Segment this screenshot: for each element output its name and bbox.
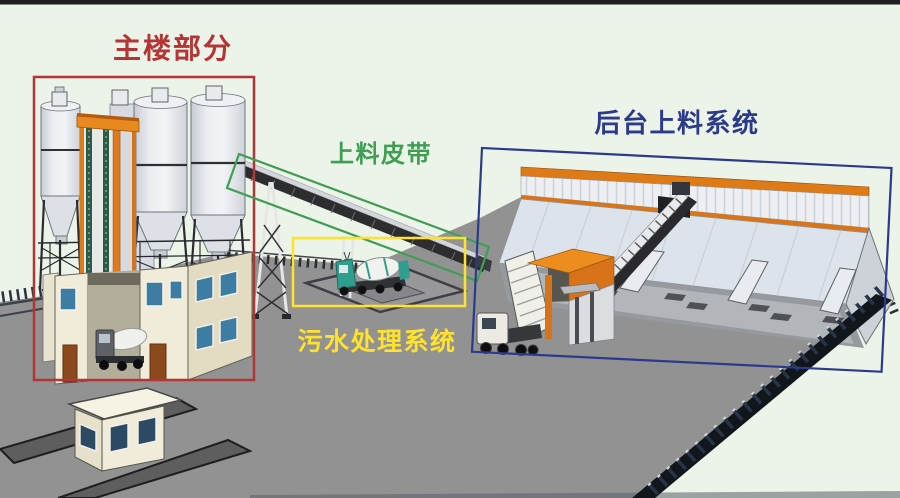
label-sewage: 污水处理系统 xyxy=(297,327,456,356)
door xyxy=(63,345,77,382)
label-main-building: 主楼部分 xyxy=(113,33,233,64)
top-border xyxy=(0,0,900,5)
gatehouse-window xyxy=(138,417,156,445)
scene: 主楼部分 上料皮带 污水处理系统 后台上料系统 xyxy=(0,0,900,498)
window xyxy=(60,288,76,310)
label-feeding-belt: 上料皮带 xyxy=(330,141,432,168)
gatehouse-window xyxy=(110,423,128,452)
label-backend: 后台上料系统 xyxy=(594,108,759,138)
mixing-tower xyxy=(77,90,139,294)
door xyxy=(150,344,166,380)
gatehouse xyxy=(69,388,181,471)
mixer-cab xyxy=(336,259,356,289)
window xyxy=(220,317,237,343)
window xyxy=(146,282,163,306)
window xyxy=(196,276,213,302)
window xyxy=(170,281,182,299)
batching-plant-diagram: 主楼部分 上料皮带 污水处理系统 后台上料系统 xyxy=(0,0,900,498)
window xyxy=(196,324,213,350)
window xyxy=(220,271,237,297)
